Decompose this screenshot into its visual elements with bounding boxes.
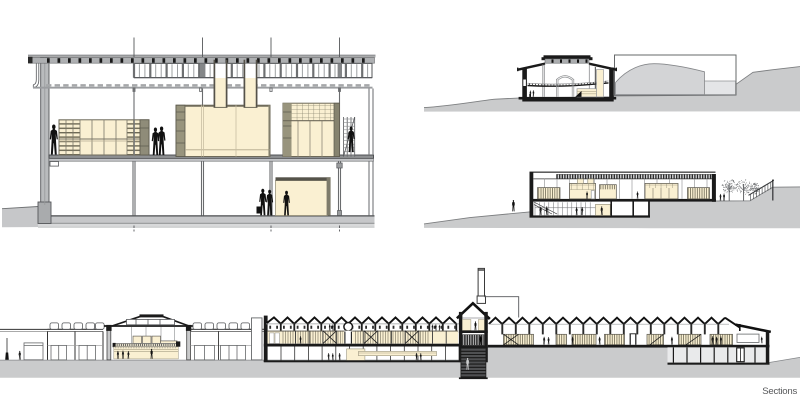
svg-text:Sections: Sections [762,386,797,397]
